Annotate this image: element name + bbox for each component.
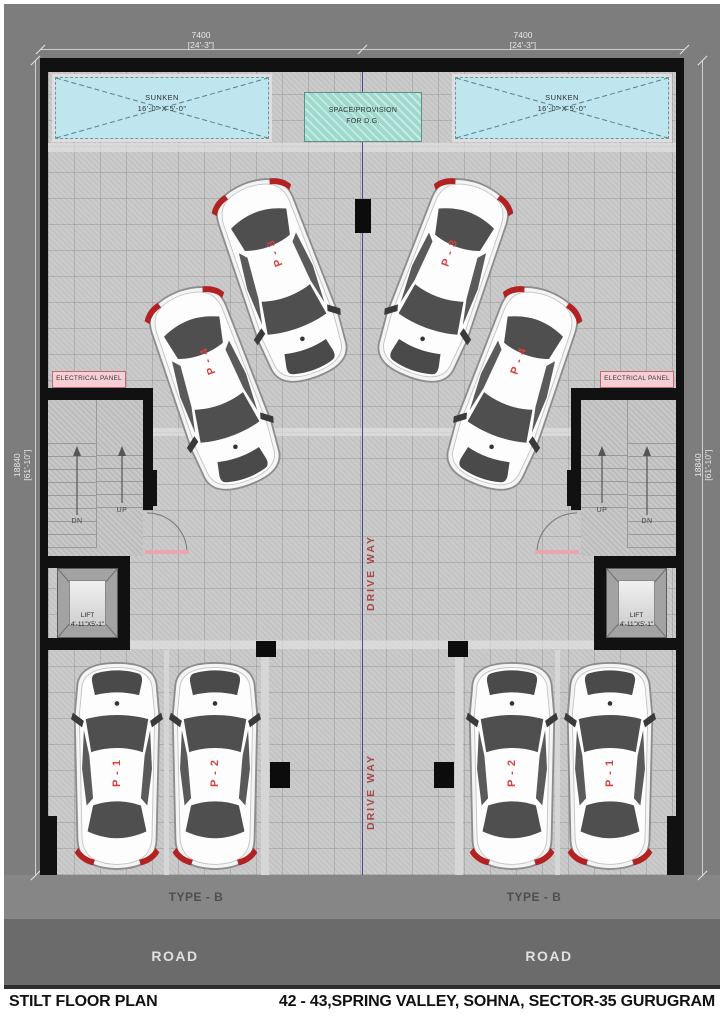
title-block: STILT FLOOR PLAN 42 - 43,SPRING VALLEY, … (4, 989, 720, 1018)
car-p1-left-label: P - 1 (111, 748, 123, 798)
parking-car-layer: P - 3 P - 4 P - 3 (0, 0, 724, 1024)
car-p1-right-label: P - 1 (604, 748, 616, 798)
driveway-label-lower: DRIVE WAY (365, 752, 377, 832)
stilt-floor-plan-sheet: 7400[24'-3"] 7400[24'-3"] 18840[61'-10"]… (0, 0, 724, 1024)
car-p2-right-label: P - 2 (506, 748, 518, 798)
plan-name: STILT FLOOR PLAN (9, 993, 158, 1011)
driveway-label-upper: DRIVE WAY (365, 533, 377, 613)
project-name: 42 - 43,SPRING VALLEY, SOHNA, SECTOR-35 … (279, 993, 715, 1011)
car-p2-left-label: P - 2 (209, 748, 221, 798)
